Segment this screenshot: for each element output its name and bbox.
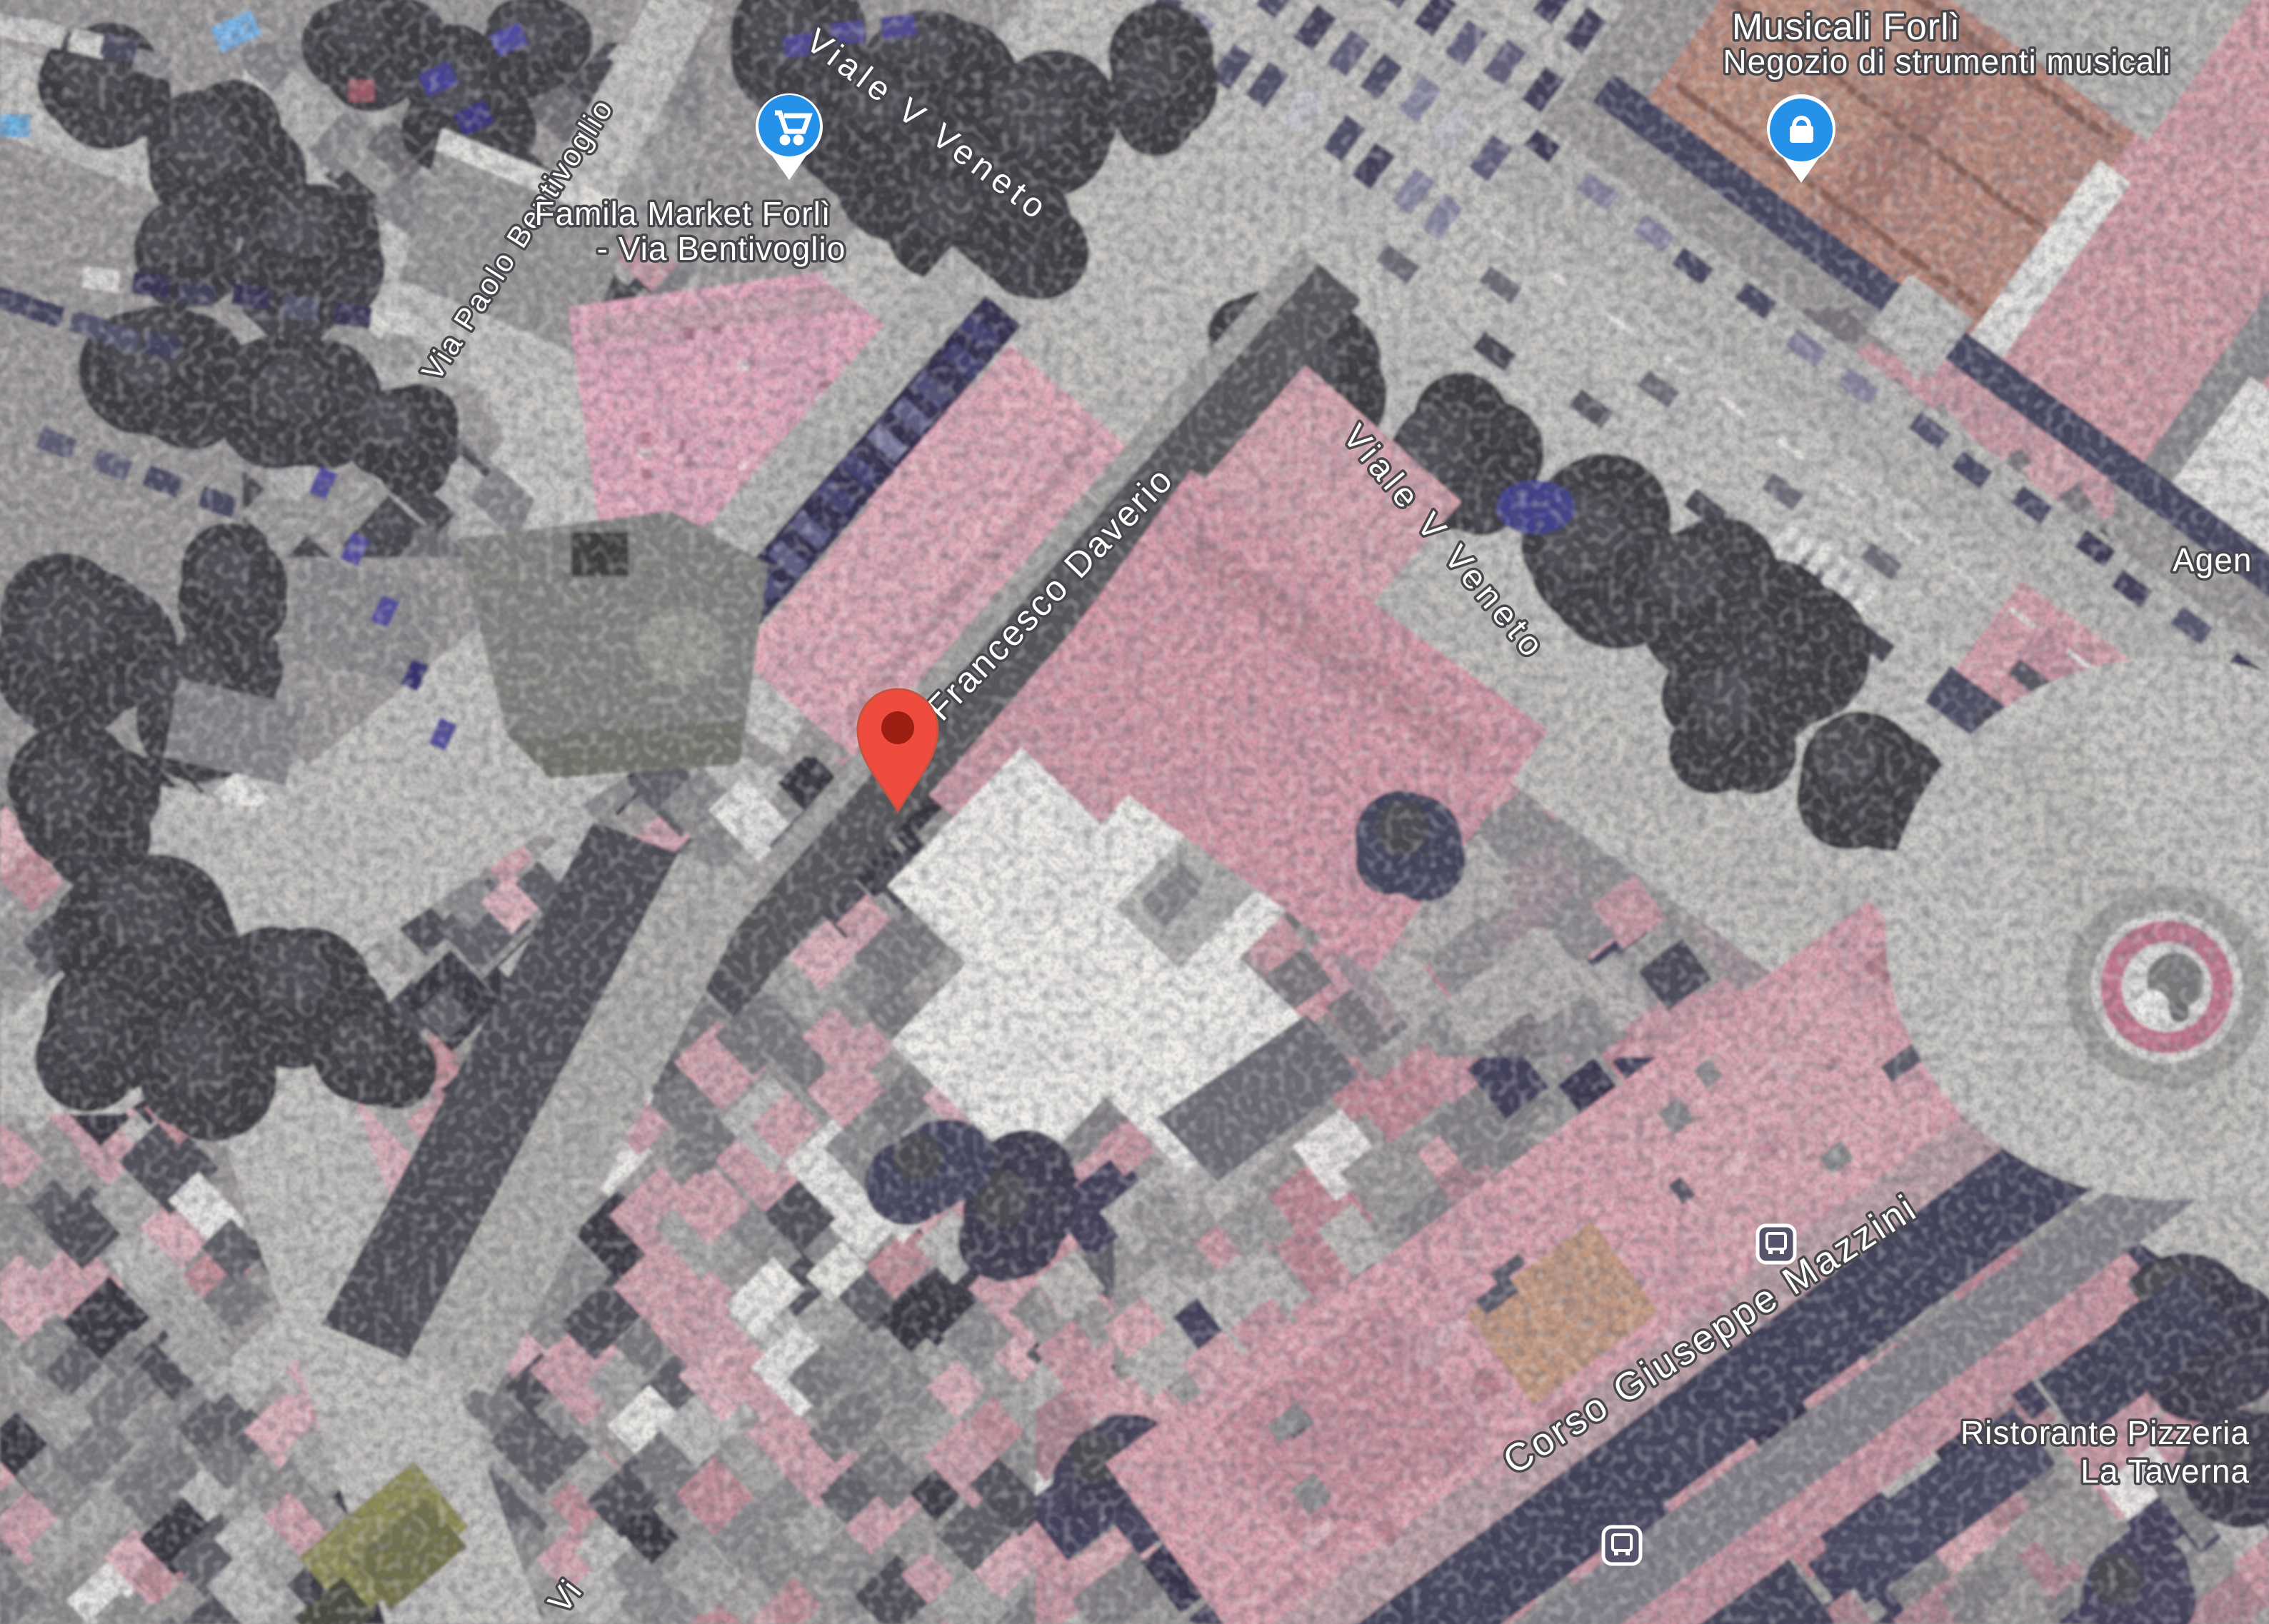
svg-text:La Taverna: La Taverna (2080, 1453, 2250, 1490)
svg-text:Agen: Agen (2173, 541, 2252, 578)
svg-text:Ristorante Pizzeria: Ristorante Pizzeria (1960, 1414, 2250, 1451)
svg-text:Famila Market Forlì: Famila Market Forlì (534, 195, 831, 232)
svg-text:- Via Bentivoglio: - Via Bentivoglio (597, 230, 846, 267)
svg-text:Musicali Forlì: Musicali Forlì (1732, 6, 1960, 48)
svg-text:Negozio di strumenti musicali: Negozio di strumenti musicali (1723, 43, 2170, 80)
